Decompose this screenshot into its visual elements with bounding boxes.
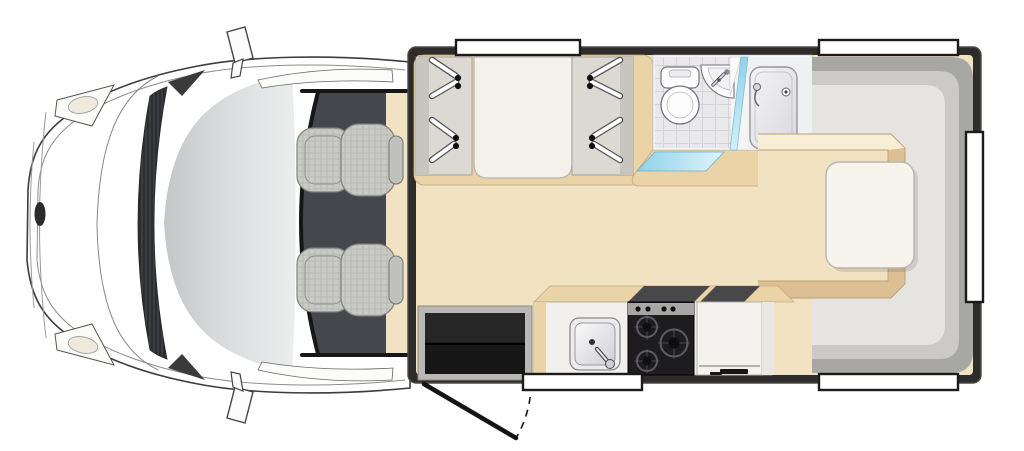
kitchen — [534, 286, 794, 375]
floorplan-svg — [0, 0, 1024, 451]
front-bunk-bed — [474, 57, 572, 178]
shower-head-icon — [754, 84, 761, 91]
window-rear-wall — [966, 132, 983, 302]
window-bottom-front — [523, 374, 642, 390]
table-top — [826, 162, 914, 268]
fridge-handle — [720, 369, 748, 374]
basin-drain — [717, 78, 721, 82]
sink-drain — [589, 339, 595, 345]
counter-left-edge — [534, 302, 546, 375]
stove — [628, 302, 694, 375]
entry-door-swing-arc — [516, 384, 531, 438]
platform-bevel-top — [758, 134, 905, 150]
wardrobe-left — [416, 57, 472, 175]
fridge — [697, 302, 762, 375]
front-badge — [35, 202, 46, 226]
cab-seat-2 — [297, 244, 403, 316]
wardrobe-right — [572, 57, 633, 175]
floorplan-canvas — [0, 0, 1024, 451]
cab-interior — [297, 90, 410, 356]
cab-seat-1 — [297, 124, 403, 196]
front-bed-wardrobe — [414, 55, 653, 185]
window-top-front — [456, 40, 580, 55]
headrest — [389, 256, 403, 304]
window-top-rear — [819, 40, 958, 55]
headrest — [389, 136, 403, 184]
dinette-table — [826, 162, 918, 272]
entry — [418, 306, 532, 438]
kitchen-sink — [570, 318, 620, 370]
window-bottom-rear — [819, 374, 958, 390]
entry-door-leaf — [424, 384, 516, 438]
toilet — [661, 67, 699, 124]
kitchen-end-panel — [762, 302, 774, 375]
